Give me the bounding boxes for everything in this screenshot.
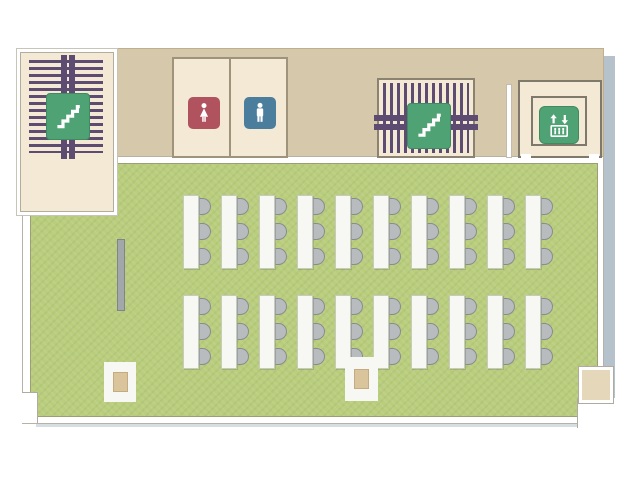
chair [237,298,249,315]
chair [465,348,477,365]
chair [199,248,211,265]
table [259,195,289,269]
chair [199,348,211,365]
seating-row [31,295,597,369]
chair [427,298,439,315]
wall-stub [506,84,512,158]
chair [427,348,439,365]
table-top [221,295,237,369]
chair [427,198,439,215]
table [297,195,327,269]
chair [275,223,287,240]
chair [389,348,401,365]
chair [465,323,477,340]
table-top [259,295,275,369]
chair [427,223,439,240]
table-top [449,195,465,269]
table [449,195,479,269]
chair [351,248,363,265]
chair [503,248,515,265]
pillar [104,362,136,402]
chair [237,223,249,240]
table-top [297,295,313,369]
chair [503,298,515,315]
chair [541,248,553,265]
table-top [487,195,503,269]
stairs-icon [46,93,90,140]
chair [465,198,477,215]
table-top [411,195,427,269]
chair [351,198,363,215]
table-top [411,295,427,369]
chair [503,348,515,365]
table-top [297,195,313,269]
chair [313,323,325,340]
chair [275,198,287,215]
floor-plan [0,0,640,480]
chair [313,348,325,365]
wall-step [22,392,38,423]
table-top [487,295,503,369]
table-top [259,195,275,269]
restroom-block [172,57,288,158]
stairs-icon [407,103,451,149]
chair [503,323,515,340]
chair [237,323,249,340]
chair [541,223,553,240]
table [487,195,517,269]
chair [275,248,287,265]
chair [427,248,439,265]
chair [389,248,401,265]
table [259,295,289,369]
chair [313,298,325,315]
chair [465,248,477,265]
chair [313,223,325,240]
chair [541,298,553,315]
chair [541,198,553,215]
chair [313,198,325,215]
chair [199,198,211,215]
seating-row [31,195,597,269]
chair [199,298,211,315]
chair [313,248,325,265]
table [411,295,441,369]
exterior-notch [579,367,613,403]
chair [541,348,553,365]
female-restroom-icon [188,97,220,129]
table [221,195,251,269]
restroom-divider-wall [229,59,231,156]
chair [237,248,249,265]
table-top [449,295,465,369]
chair [465,298,477,315]
pillar [345,357,378,401]
pillar-core [354,369,369,389]
chair [237,348,249,365]
chair [465,223,477,240]
table-top [183,295,199,369]
table-top [183,195,199,269]
table [297,295,327,369]
chair [199,223,211,240]
table-top [335,195,351,269]
table [335,195,365,269]
chair [389,198,401,215]
elevator-door-gap [589,154,599,159]
elevator-icon [539,106,579,144]
table-top [373,195,389,269]
chair [351,298,363,315]
chair [541,323,553,340]
chair [351,323,363,340]
table [183,195,213,269]
table [221,295,251,369]
table-top [221,195,237,269]
elevator-door-gap [521,154,531,159]
table [183,295,213,369]
chair [503,198,515,215]
table [487,295,517,369]
chair [275,323,287,340]
partition-wall [117,239,125,311]
chair [503,223,515,240]
table [411,195,441,269]
chair [351,223,363,240]
chair [427,323,439,340]
pillar-core [113,372,128,392]
table-top [525,295,541,369]
chair [389,223,401,240]
chair [389,323,401,340]
table [525,195,555,269]
table [449,295,479,369]
chair [275,298,287,315]
chair [237,198,249,215]
table-top [525,195,541,269]
table [373,195,403,269]
male-restroom-icon [244,97,276,129]
chair [389,298,401,315]
chair [275,348,287,365]
table [525,295,555,369]
chair [199,323,211,340]
